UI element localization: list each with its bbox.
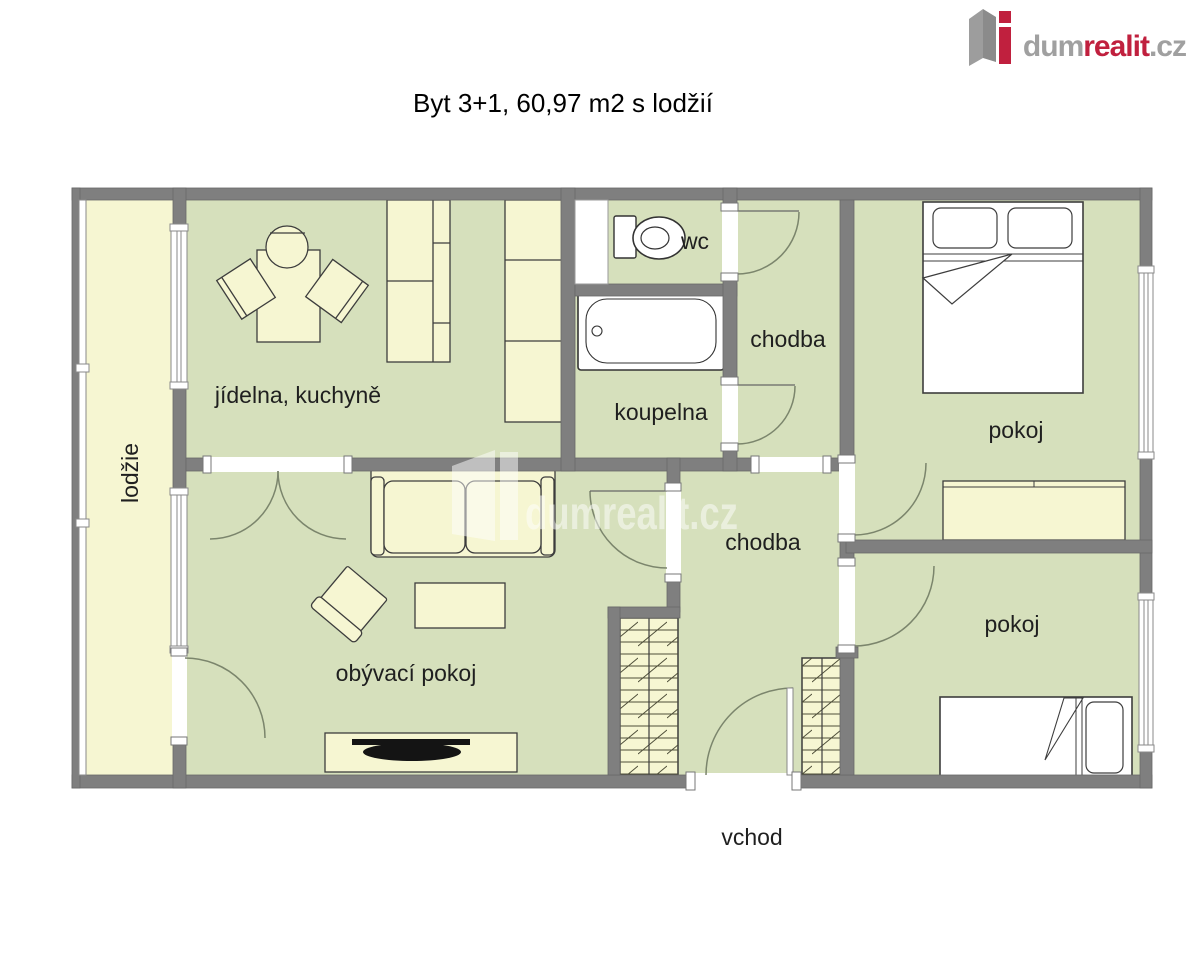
window-kitchen <box>170 224 188 389</box>
room-label-bedroom-bottom: pokoj <box>985 611 1040 637</box>
gap-wc-door <box>722 210 738 274</box>
bedroom-dresser <box>943 481 1125 540</box>
window-bedroom-top <box>1138 266 1154 459</box>
floorplan-svg: jídelna, kuchyně wc koupelna chodba poko… <box>0 0 1200 980</box>
room-label-bedroom-top: pokoj <box>989 417 1044 443</box>
wall-bedroom-divider <box>846 540 1152 553</box>
kitchen-cabinet-tall-right <box>505 200 562 422</box>
wall-kitchen-bath <box>561 188 575 471</box>
gap-double-door <box>208 457 348 472</box>
double-bed <box>923 202 1083 393</box>
wardrobe-right <box>802 658 842 775</box>
room-label-loggia: lodžie <box>117 443 143 503</box>
watermark-logo-bar <box>500 452 518 540</box>
wall-top <box>72 188 1152 200</box>
bathtub <box>578 292 724 370</box>
gap-bedroom-top-door <box>839 463 855 535</box>
watermark-logo-icon <box>452 450 495 541</box>
room-label-kitchen: jídelna, kuchyně <box>214 382 381 408</box>
dining-chair-top <box>266 226 308 268</box>
gap-loggia-door <box>172 655 187 738</box>
gap-bedroom-bottom-door <box>839 566 855 646</box>
wall-niche-left <box>608 607 620 775</box>
watermark-text: dumrealit.cz <box>525 487 738 539</box>
room-label-living: obývací pokoj <box>336 660 477 686</box>
gap-entrance-door <box>693 773 793 790</box>
door-leaf-entrance <box>787 688 793 775</box>
room-label-wc: wc <box>680 228 709 254</box>
kitchen-cabinet-tall-left <box>387 200 450 362</box>
floorplan-page: dumrealit.cz Byt 3+1, 60,97 m2 s lodžií <box>0 0 1200 980</box>
single-bed <box>940 697 1132 778</box>
room-label-hall-upper: chodba <box>750 326 826 352</box>
room-label-bathroom: koupelna <box>614 399 708 425</box>
window-living <box>170 488 188 653</box>
wardrobe-left <box>620 618 678 775</box>
toilet <box>614 216 685 259</box>
entrance-label: vchod <box>721 824 782 850</box>
shaft <box>575 200 608 284</box>
gap-bath-door <box>722 384 738 444</box>
coffee-table <box>415 583 505 628</box>
wall-wc-bath <box>575 284 737 296</box>
wall-bottom <box>72 775 1152 788</box>
window-bedroom-bottom <box>1138 593 1154 752</box>
gap-hall-door <box>758 457 824 472</box>
